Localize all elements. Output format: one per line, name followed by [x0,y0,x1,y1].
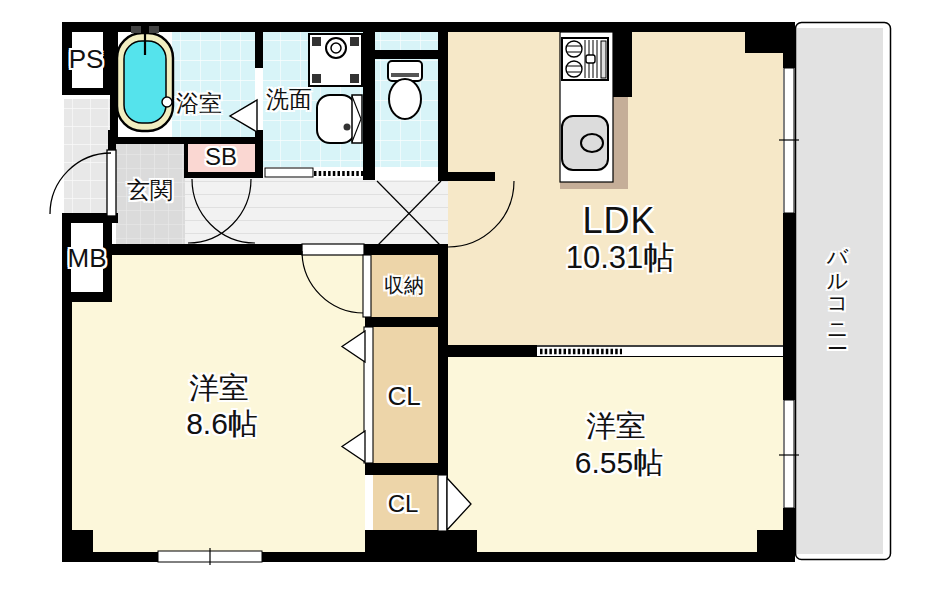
washing-machine [309,34,362,86]
bathtub-faucet-knob [149,26,159,33]
washroom-label: 洗面 [266,88,312,111]
ldk-size-label: 10.31帖 [566,242,675,273]
storage-door-panel [363,255,371,317]
bathtub-faucet-knob [131,26,141,33]
ps-label: PS [69,46,104,72]
kitchen-stove [562,38,608,80]
toilet [388,61,422,119]
porch-floor [64,99,110,215]
washroom-sliding-panel [265,168,313,177]
closet-upper-label: CL [387,383,420,409]
bathtub [117,26,173,131]
storage-label: 収納 [384,275,424,295]
balcony-label: バルコニー [828,233,849,339]
bedroom-right-label: 洋室 [586,411,646,441]
counter-shadow-bottom [560,182,628,189]
bedroom-left-label: 洋室 [189,373,249,403]
counter-shadow-right [613,97,628,188]
ldk-label: LDK [582,203,655,239]
meter-box-label: MB [68,245,107,271]
closet-lower-door-panel [438,475,447,531]
bedroom-right-size-label: 6.55帖 [575,448,663,478]
window-bedroom-right [784,400,794,508]
bathtub-drain-knob [162,97,172,107]
closet-lower-label: CL [388,492,419,516]
toilet-entry-opening [375,167,438,180]
floor-plan-drawing [0,0,928,592]
bedroom-left-size-label: 8.6帖 [186,409,258,439]
shoe-box-label: SB [205,145,237,169]
hallway-floor [185,177,448,244]
sink-faucet [581,134,603,152]
washbasin [317,95,362,143]
bathroom-label: 浴室 [176,92,222,115]
entrance-label: 玄関 [127,179,173,202]
bedroom-left-door-leaf [302,244,364,255]
kitchen-sink [562,116,608,170]
entrance-door-leaf [107,150,116,216]
floor-plan: PS 浴室 洗面 SB 玄関 MB LDK 10.31帖 収納 CL CL 洋室… [0,0,928,592]
